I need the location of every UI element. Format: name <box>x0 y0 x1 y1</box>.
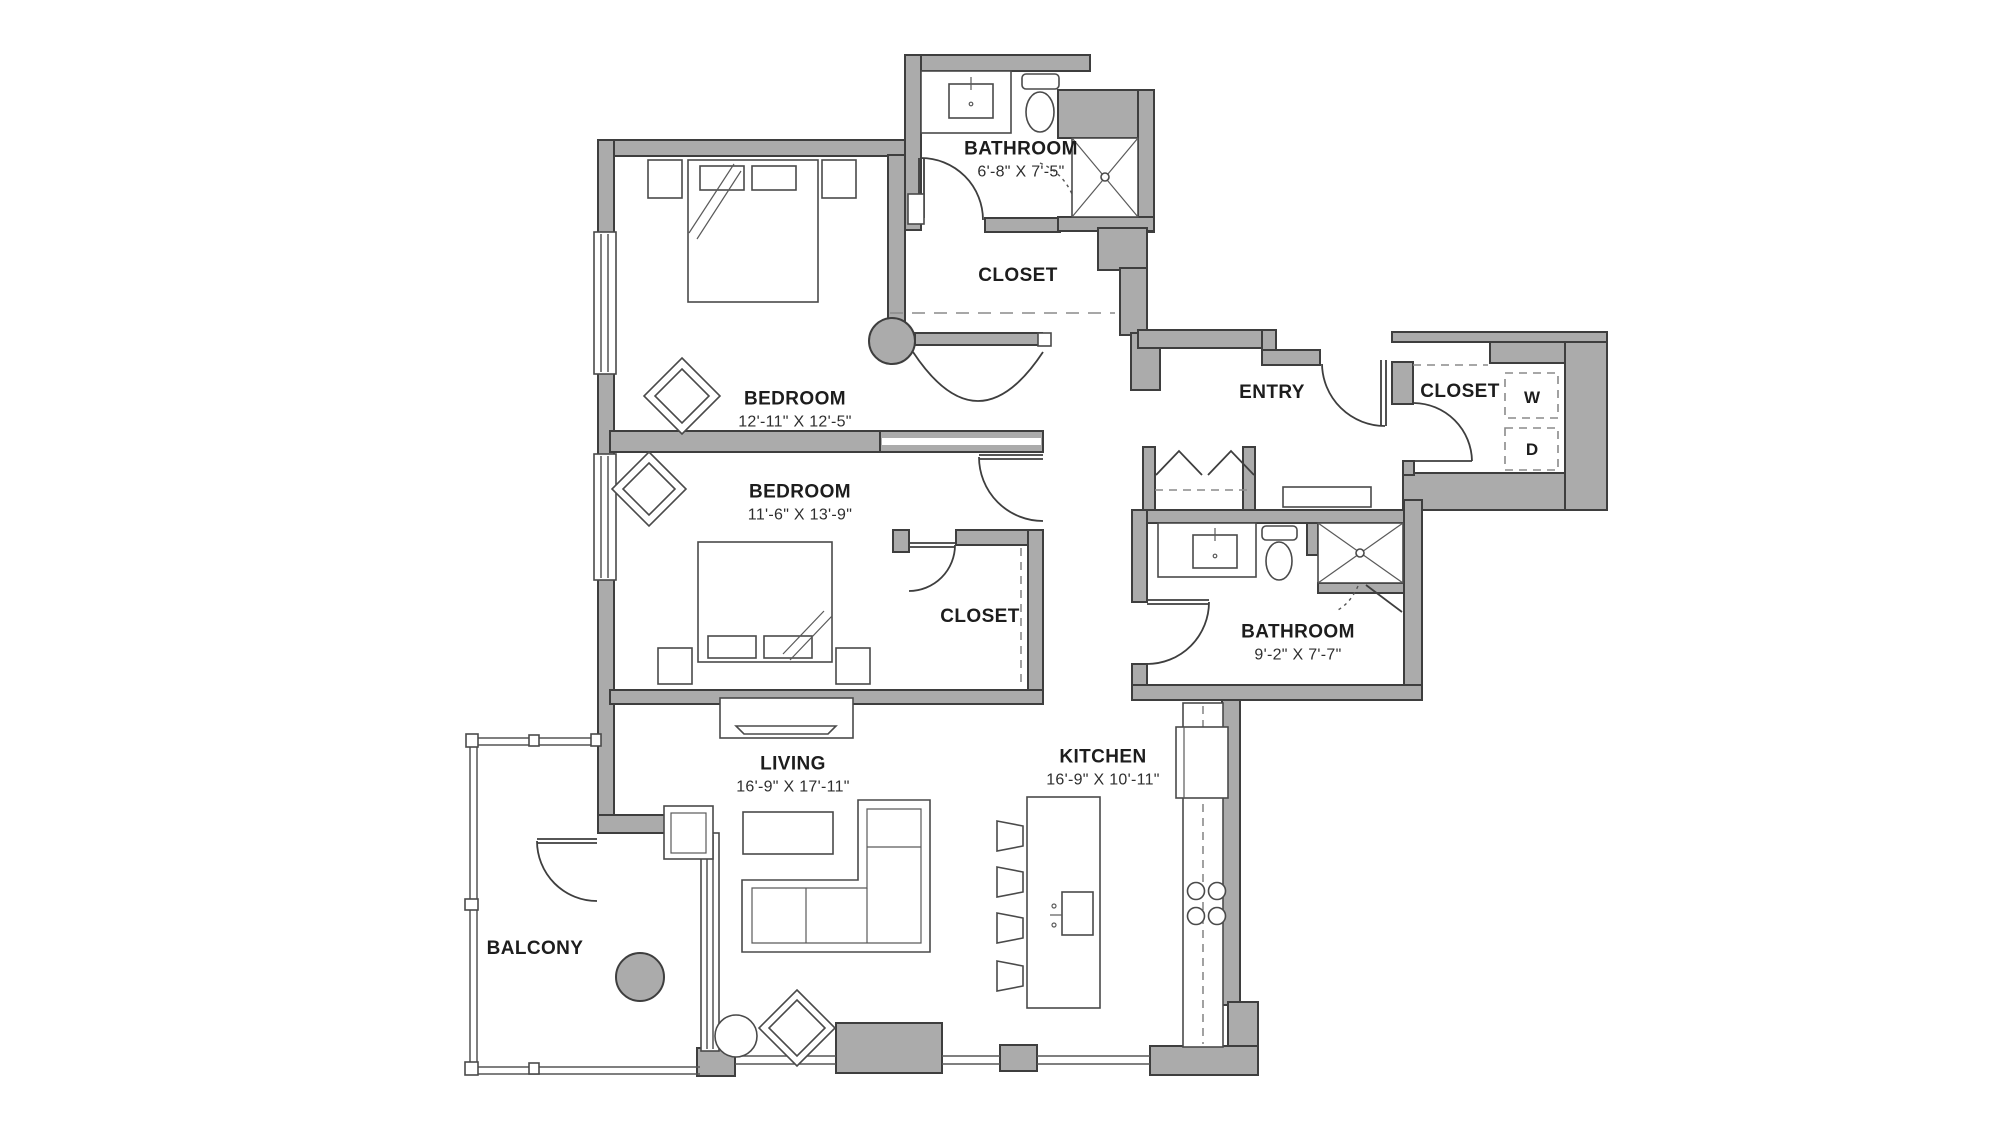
side-table <box>715 1015 757 1057</box>
burner <box>1209 908 1226 925</box>
bar-stool <box>997 961 1023 991</box>
bar-stool <box>997 867 1023 897</box>
washer-label: W <box>1524 388 1540 408</box>
bedroom-1-furniture <box>644 160 856 434</box>
floorplan-drawing <box>0 0 2000 1126</box>
island-sink <box>1062 892 1093 935</box>
shower-drain <box>1101 173 1109 181</box>
bedroom-2-furniture <box>612 452 1021 686</box>
shower-drain <box>1356 549 1364 557</box>
balcony-railing <box>465 734 700 1075</box>
toilet-bowl <box>1026 92 1054 132</box>
burner <box>1209 883 1226 900</box>
nightstand <box>658 648 692 684</box>
pillow <box>700 166 744 190</box>
console-shelf <box>1283 487 1371 507</box>
toilet-bowl <box>1266 542 1292 580</box>
bar-stool <box>997 913 1023 943</box>
pillow <box>708 636 756 658</box>
bathroom-2-fixtures <box>1158 523 1403 583</box>
nightstand <box>836 648 870 684</box>
nightstand <box>822 160 856 198</box>
toilet-tank <box>1262 526 1297 540</box>
coffee-table <box>743 812 833 854</box>
burner <box>1188 883 1205 900</box>
toilet-tank <box>1022 74 1059 89</box>
pillow <box>752 166 796 190</box>
pillow <box>764 636 812 658</box>
dryer-label: D <box>1526 440 1538 460</box>
floorplan-canvas: BATHROOM 6'-8" X 7'-5" CLOSET BEDROOM 12… <box>0 0 2000 1126</box>
kitchen-fixtures <box>997 703 1228 1047</box>
nightstand <box>648 160 682 198</box>
tv <box>736 726 836 734</box>
burner <box>1188 908 1205 925</box>
bifold-door <box>1156 451 1202 475</box>
bar-stool <box>997 821 1023 851</box>
entry-closet-fixtures <box>1155 451 1371 507</box>
